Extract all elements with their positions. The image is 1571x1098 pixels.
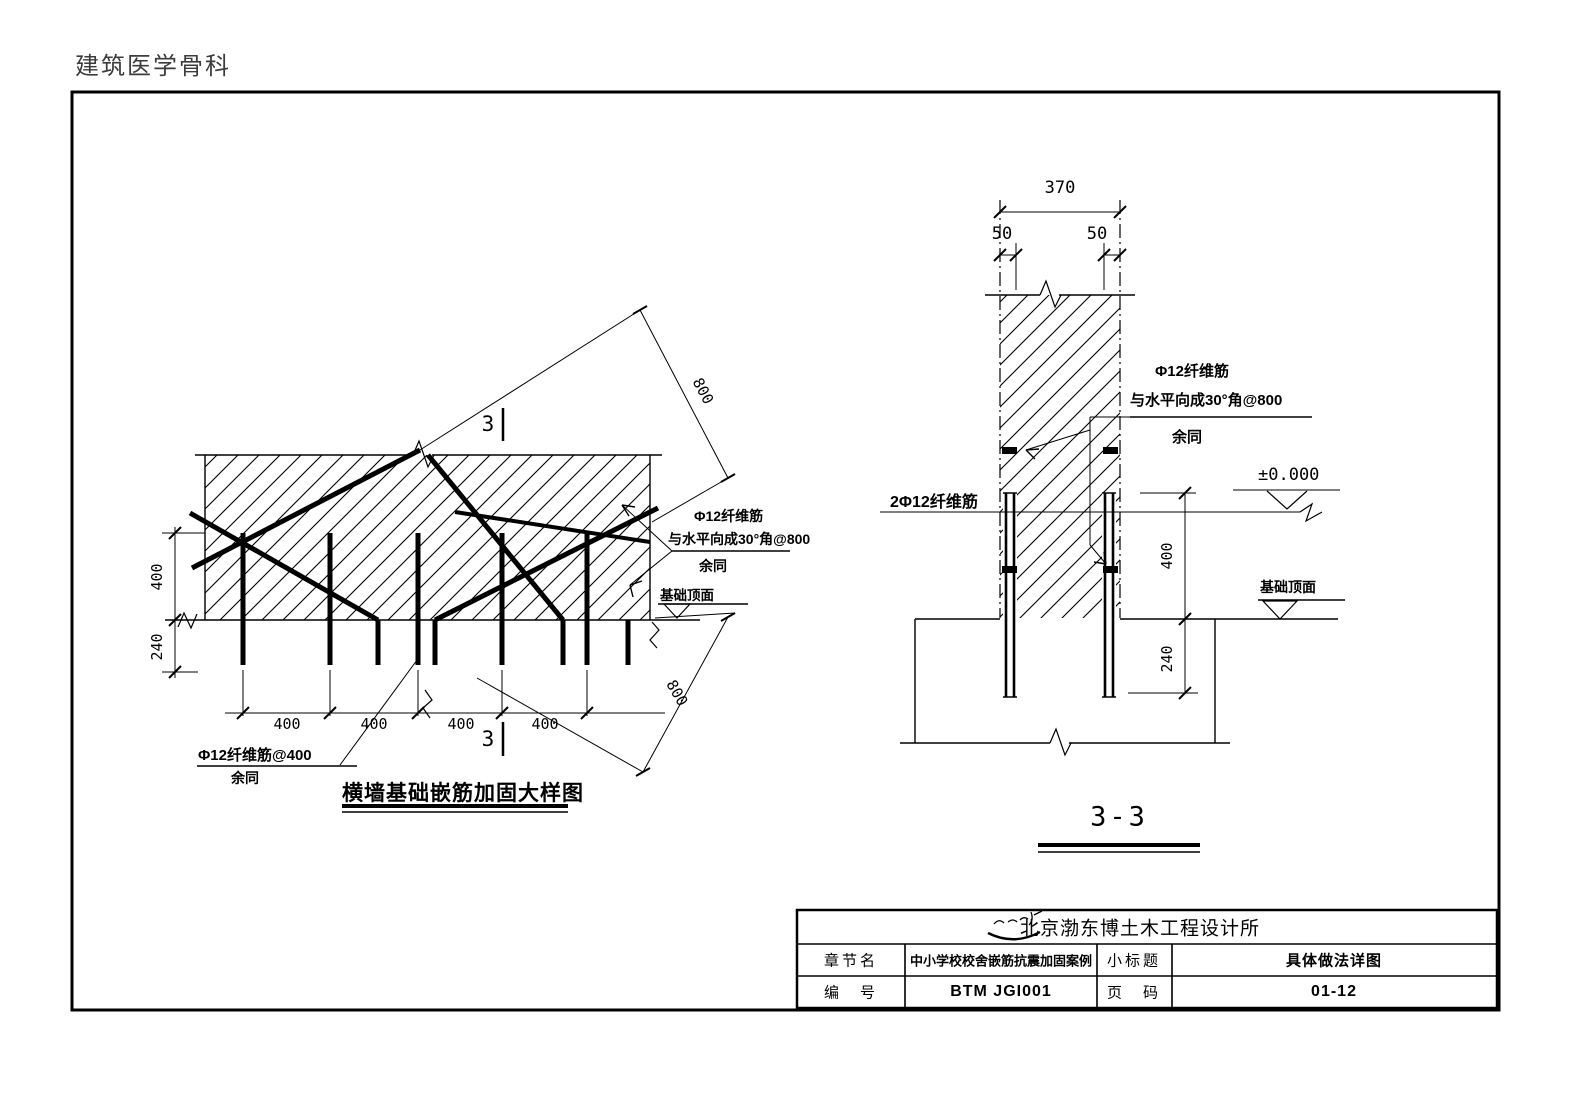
title-block-row1-value1: 中小学校校舍嵌筋抗震加固案例 [910,951,1092,970]
left-dim-bottom-2: 400 [360,715,387,733]
title-block-row2-value1: BTM JGI001 [950,983,1052,1001]
right-dim-240: 240 [1158,645,1176,672]
right-note-pair: 2Φ12纤维筋 [890,488,978,512]
drawing-linework [0,0,1571,1098]
title-block-row2-label1: 编 号 [824,982,878,1003]
right-level-zero: ±0.000 [1258,465,1319,485]
right-dim-370: 370 [1045,178,1076,198]
title-block-row2-label2: 页 码 [1107,982,1161,1003]
title-block-row1-value2: 具体做法详图 [1286,950,1382,971]
left-section-mark-bottom: 3 [482,727,495,751]
title-block-company: 北京渤东博土木工程设计所 [1020,914,1260,941]
left-note-dowel-line2: 余同 [231,768,259,788]
left-dim-bottom-4: 400 [531,715,558,733]
right-note-fiber-line1: Φ12纤维筋 [1155,360,1229,381]
right-section-title: 3-3 [1090,802,1148,833]
left-dim-240: 240 [148,633,166,660]
left-dim-bottom-3: 400 [447,715,474,733]
right-dim-400: 400 [1158,542,1176,569]
title-block-row2-value2: 01-12 [1311,983,1357,1001]
left-dim-400: 400 [148,563,166,590]
left-note-fiber-line2: 与水平向成30°角@800 [668,529,810,549]
drawing-sheet: 建筑医学骨科 3 3 400 240 400 400 400 400 800 8… [0,0,1571,1098]
right-dim-50-left: 50 [992,224,1012,244]
right-note-fiber-line2: 与水平向成30°角@800 [1130,389,1282,410]
left-note-dowel-line1: Φ12纤维筋@400 [198,744,312,765]
right-drawing [880,200,1345,852]
sheet-header-title: 建筑医学骨科 [75,46,231,81]
left-note-fiber-line1: Φ12纤维筋 [694,506,763,526]
left-drawing-title: 横墙基础嵌筋加固大样图 [342,777,584,807]
title-block-row1-label2: 小标题 [1107,950,1161,971]
right-dim-50-right: 50 [1087,224,1107,244]
left-dim-bottom-1: 400 [273,715,300,733]
left-note-foundation-top: 基础顶面 [660,584,714,604]
left-section-mark-top: 3 [482,412,495,436]
right-note-fiber-line3: 余同 [1172,426,1202,447]
left-note-fiber-line3: 余同 [699,556,727,576]
right-note-foundation-top: 基础顶面 [1260,577,1316,597]
title-block-row1-label1: 章节名 [824,950,878,971]
